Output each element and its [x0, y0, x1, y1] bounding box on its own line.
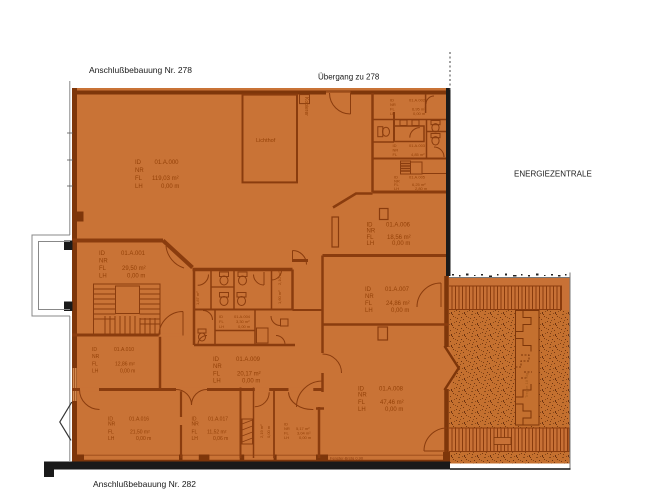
- svg-text:ID: ID: [213, 357, 220, 363]
- svg-text:1,87 m²: 1,87 m²: [195, 291, 200, 305]
- svg-text:01.A.002: 01.A.002: [409, 97, 426, 102]
- svg-text:0,00 m: 0,00 m: [266, 425, 271, 438]
- svg-text:LH: LH: [99, 274, 107, 280]
- svg-text:NR: NR: [358, 393, 367, 399]
- svg-text:NR: NR: [213, 364, 222, 370]
- svg-text:0,00 m: 0,00 m: [391, 308, 409, 314]
- svg-text:01.A.005: 01.A.005: [409, 175, 426, 180]
- svg-text:12,86 m²: 12,86 m²: [115, 362, 135, 368]
- svg-text:FL: FL: [393, 152, 398, 157]
- svg-text:0,00 m: 0,00 m: [299, 435, 312, 440]
- svg-text:01.A.016: 01.A.016: [129, 417, 149, 423]
- svg-text:01.A.009: 01.A.009: [236, 357, 261, 363]
- svg-text:LH: LH: [92, 369, 99, 375]
- svg-text:01.A.017: 01.A.017: [208, 417, 228, 423]
- svg-text:FL: FL: [92, 362, 98, 368]
- svg-text:ID: ID: [135, 160, 142, 166]
- svg-text:0,00 m: 0,00 m: [242, 379, 260, 385]
- svg-text:Fenster-Brstg 0.90: Fenster-Brstg 0.90: [330, 456, 364, 461]
- svg-text:24,86 m²: 24,86 m²: [386, 301, 410, 307]
- svg-text:01.A.008: 01.A.008: [379, 387, 404, 393]
- svg-text:LH: LH: [394, 186, 399, 191]
- svg-text:ID: ID: [99, 251, 106, 257]
- svg-text:29,50 m²: 29,50 m²: [122, 266, 146, 272]
- svg-text:NR: NR: [108, 422, 116, 428]
- svg-text:2,80 m: 2,80 m: [415, 186, 428, 191]
- svg-text:2,19 m²: 2,19 m²: [259, 424, 264, 438]
- svg-text:NR: NR: [99, 259, 108, 265]
- svg-text:FL: FL: [135, 176, 143, 182]
- svg-text:01.A.007: 01.A.007: [385, 287, 410, 293]
- svg-text:NR: NR: [92, 354, 100, 360]
- svg-text:LH: LH: [390, 111, 395, 116]
- svg-text:NR: NR: [367, 229, 376, 235]
- svg-text:01.A.001: 01.A.001: [121, 251, 146, 257]
- svg-text:0,00 m: 0,00 m: [385, 407, 403, 413]
- svg-text:FL: FL: [213, 372, 221, 378]
- svg-text:NR: NR: [365, 294, 374, 300]
- svg-text:4,85 m²: 4,85 m²: [411, 152, 425, 157]
- svg-text:NR: NR: [135, 168, 144, 174]
- svg-text:ID: ID: [365, 287, 372, 293]
- svg-text:LH: LH: [358, 407, 366, 413]
- svg-text:LH: LH: [135, 184, 143, 190]
- svg-text:LH: LH: [365, 308, 373, 314]
- svg-text:LH: LH: [284, 435, 289, 440]
- svg-text:0,00 m: 0,00 m: [120, 369, 135, 375]
- svg-text:Anschlußbebauung Nr. 282: Anschlußbebauung Nr. 282: [93, 479, 196, 489]
- svg-text:FL: FL: [99, 266, 107, 272]
- svg-text:119,03 m²: 119,03 m²: [152, 176, 179, 182]
- svg-text:LH: LH: [213, 379, 221, 385]
- svg-text:Kopierer: Kopierer: [303, 97, 309, 116]
- svg-text:LH: LH: [108, 436, 115, 442]
- svg-text:01.A.006: 01.A.006: [386, 223, 411, 229]
- svg-text:01.A.010: 01.A.010: [114, 347, 134, 353]
- svg-text:20,17 m²: 20,17 m²: [237, 372, 261, 378]
- svg-text:0,00 m: 0,00 m: [136, 436, 151, 442]
- svg-text:Lichthof: Lichthof: [256, 138, 276, 144]
- svg-text:11,52 m²: 11,52 m²: [207, 430, 227, 436]
- svg-text:21,50 m²: 21,50 m²: [130, 430, 150, 436]
- svg-text:0,00 m: 0,00 m: [413, 111, 426, 116]
- svg-text:FL: FL: [365, 301, 373, 307]
- svg-text:ENERGIEZENTRALE: ENERGIEZENTRALE: [514, 169, 592, 178]
- svg-text:1,60 m²: 1,60 m²: [277, 290, 282, 304]
- svg-text:LH: LH: [219, 324, 224, 329]
- svg-text:Anschlußbebauung Nr. 278: Anschlußbebauung Nr. 278: [89, 65, 192, 75]
- svg-text:0,00 m: 0,00 m: [392, 241, 410, 247]
- svg-text:FL: FL: [358, 400, 366, 406]
- svg-text:01.A.000: 01.A.000: [155, 160, 180, 166]
- svg-text:Treppe 18 Stg: Treppe 18 Stg: [524, 373, 529, 398]
- svg-text:NR: NR: [192, 422, 200, 428]
- svg-text:LH: LH: [367, 241, 375, 247]
- svg-text:0,00 m: 0,00 m: [161, 184, 179, 190]
- svg-text:01.A.003: 01.A.003: [409, 143, 426, 148]
- svg-text:FL: FL: [108, 430, 114, 436]
- svg-text:LH: LH: [192, 436, 199, 442]
- svg-text:ID: ID: [92, 347, 97, 353]
- svg-text:47,46 m²: 47,46 m²: [380, 400, 404, 406]
- svg-text:2,10 m²: 2,10 m²: [277, 271, 282, 285]
- svg-text:0,06 m: 0,06 m: [213, 436, 228, 442]
- svg-text:FL: FL: [192, 430, 198, 436]
- svg-text:0,00 m: 0,00 m: [238, 324, 251, 329]
- svg-text:0,00 m: 0,00 m: [127, 274, 145, 280]
- svg-text:Übergang zu 278: Übergang zu 278: [318, 73, 380, 82]
